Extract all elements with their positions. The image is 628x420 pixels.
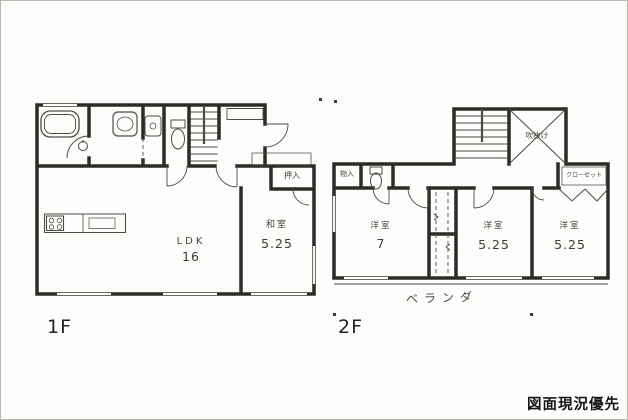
room-label-washitsu: 和室 xyxy=(249,221,305,230)
floor-label-2f: 2F xyxy=(338,318,363,337)
toilet-icon xyxy=(171,120,185,149)
room-label-west2: 洋室 xyxy=(461,222,527,231)
porch-step xyxy=(252,153,311,165)
floor-label-1f: 1F xyxy=(47,318,72,337)
mark-dot xyxy=(319,98,322,101)
room-size-west2: 5.25 xyxy=(461,239,527,252)
kitchen-counter-icon xyxy=(45,214,126,233)
floorplan-image: LDK 16 和室 5.25 押入 洋室 7 洋室 5.25 洋室 5.25 物… xyxy=(0,0,628,420)
bathtub-icon xyxy=(41,111,79,137)
stairs-icon xyxy=(456,109,508,158)
toilet-icon xyxy=(370,167,382,189)
floorplan-1f-drawing xyxy=(31,96,331,316)
balcony-label: ベランダ xyxy=(399,291,485,306)
mark-dot xyxy=(530,313,533,316)
drawing-note: 図面現況優先 xyxy=(527,393,620,414)
walls-1f xyxy=(37,105,314,294)
stairs-icon xyxy=(191,106,218,161)
room-size-west1: 7 xyxy=(349,238,413,251)
washer-pan-icon xyxy=(145,116,161,136)
room-size-west3: 5.25 xyxy=(539,239,601,252)
room-size-washitsu: 5.25 xyxy=(249,238,305,251)
mark-dot xyxy=(334,100,337,103)
room-label-void: 吹抜け xyxy=(507,132,567,140)
room-label-west1: 洋室 xyxy=(349,222,413,231)
door-arcs-2f xyxy=(373,188,544,208)
entrance-door-arc xyxy=(265,124,288,147)
room-label-west3: 洋室 xyxy=(539,222,601,231)
room-label-oshiire: 押入 xyxy=(270,172,314,180)
room-size-ldk: 16 xyxy=(166,251,216,264)
closet-fold-doors xyxy=(559,189,608,201)
room-label-storage: 物入 xyxy=(327,171,367,178)
vanity-icon xyxy=(113,112,137,136)
shoe-cabinet-icon xyxy=(227,109,263,120)
mark-dot xyxy=(333,313,336,316)
room-label-ldk: LDK xyxy=(166,237,216,247)
sink-icon xyxy=(79,140,88,151)
windows-1f xyxy=(43,104,315,296)
room-label-closet: クローゼット xyxy=(557,173,611,179)
